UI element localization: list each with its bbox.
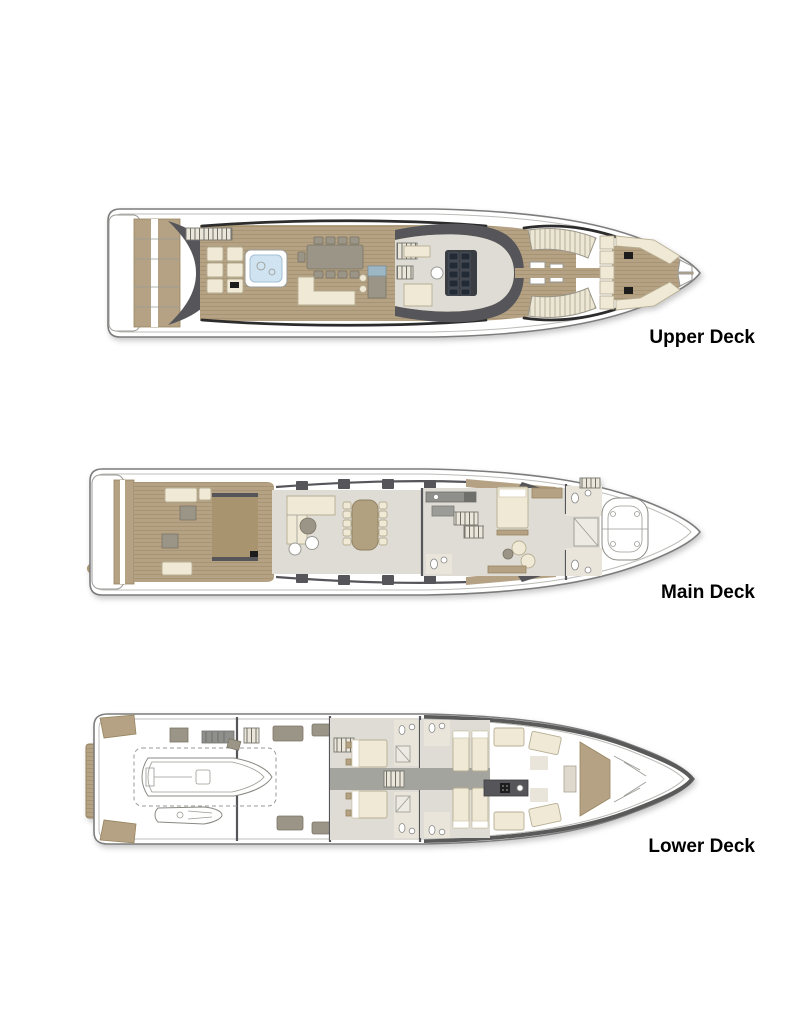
covered-deck-nook [212, 493, 258, 561]
foyer-stairs [580, 478, 600, 488]
salon-dining [343, 500, 387, 550]
main-salon [272, 490, 422, 574]
aft-lounger [165, 488, 197, 502]
upper-deck-label: Upper Deck [649, 327, 755, 349]
corridor-stairs [384, 771, 404, 787]
main-deck-label: Main Deck [661, 582, 755, 604]
bow-table-2 [624, 287, 633, 294]
owner-side-table [503, 549, 513, 559]
coffee-table [300, 518, 316, 534]
engine-room-stairs [244, 728, 259, 743]
wheelhouse-settee [404, 284, 432, 306]
garage-equipment [170, 728, 188, 742]
twin-bathroom [424, 720, 450, 746]
jacuzzi [245, 250, 287, 287]
foredeck-walkway [515, 268, 610, 278]
tv-cabinet [488, 566, 526, 573]
yacht-deck-plans: Upper Deck [0, 0, 800, 1036]
er-tank-2 [277, 816, 303, 830]
deck-hatch [230, 282, 239, 288]
owner-stateroom [484, 478, 602, 580]
crew-bathroom [530, 756, 548, 770]
aft-table [180, 506, 196, 520]
guest-double-bed [346, 740, 387, 767]
aft-lounger-2 [162, 562, 192, 575]
lower-deck-plan [84, 704, 700, 854]
guest-bathroom-2 [394, 792, 420, 838]
main-stern [92, 475, 134, 589]
er-tank [273, 726, 303, 741]
aft-deck-stairs [186, 228, 232, 240]
side-table [289, 543, 301, 555]
side-table-2 [306, 537, 319, 550]
bow-sunpad [602, 498, 648, 560]
main-deck-plan [86, 466, 706, 598]
crew-galley [484, 780, 528, 796]
crew-mess-table [564, 766, 576, 792]
main-galley [422, 488, 486, 576]
stern-step [100, 715, 136, 738]
guest-bathroom [394, 720, 420, 766]
helm-seat [431, 267, 443, 279]
owner-bed [497, 487, 528, 535]
bow-table [624, 252, 633, 259]
guest-double-bed-2 [346, 791, 387, 818]
wheelhouse [395, 224, 524, 323]
main-stairs [454, 512, 478, 525]
lower-deck-label: Lower Deck [648, 836, 755, 858]
wheelhouse-stairs-2 [397, 266, 413, 279]
crew-bunk [494, 728, 524, 746]
wheelhouse-cabinet [404, 246, 430, 257]
upper-deck-plan [104, 206, 704, 340]
main-aft-deck [134, 482, 274, 582]
day-head [426, 554, 452, 574]
wardrobe [532, 488, 562, 498]
aft-table-2 [162, 534, 178, 548]
crew-bathroom-2 [530, 788, 548, 802]
helm-console [445, 250, 477, 296]
jet-ski [155, 807, 222, 824]
tender [142, 758, 272, 796]
armchair [512, 541, 526, 555]
stern-step-2 [100, 820, 136, 843]
twin-bathroom-2 [424, 812, 450, 838]
crew-bunk-3 [494, 812, 524, 830]
